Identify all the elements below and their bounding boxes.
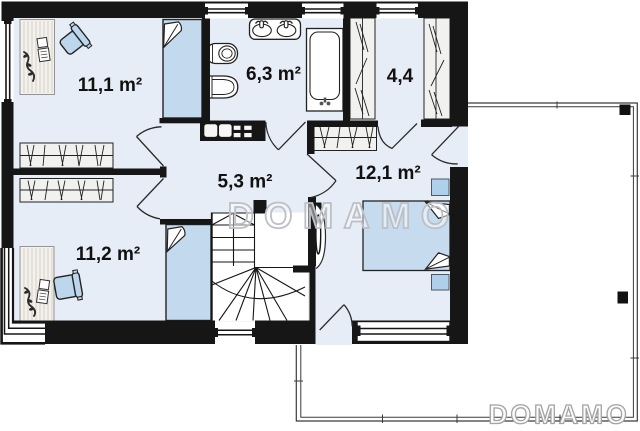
svg-text:6,3 m²: 6,3 m² (246, 64, 301, 85)
svg-text:4,4: 4,4 (387, 66, 414, 87)
svg-text:12,1 m²: 12,1 m² (355, 163, 420, 184)
svg-text:5,3 m²: 5,3 m² (218, 172, 273, 193)
svg-text:11,1 m²: 11,1 m² (78, 75, 142, 96)
svg-text:DOMAMO: DOMAMO (228, 195, 460, 236)
svg-text:11,2 m²: 11,2 m² (76, 244, 140, 265)
svg-text:DOMAMO: DOMAMO (489, 400, 630, 430)
